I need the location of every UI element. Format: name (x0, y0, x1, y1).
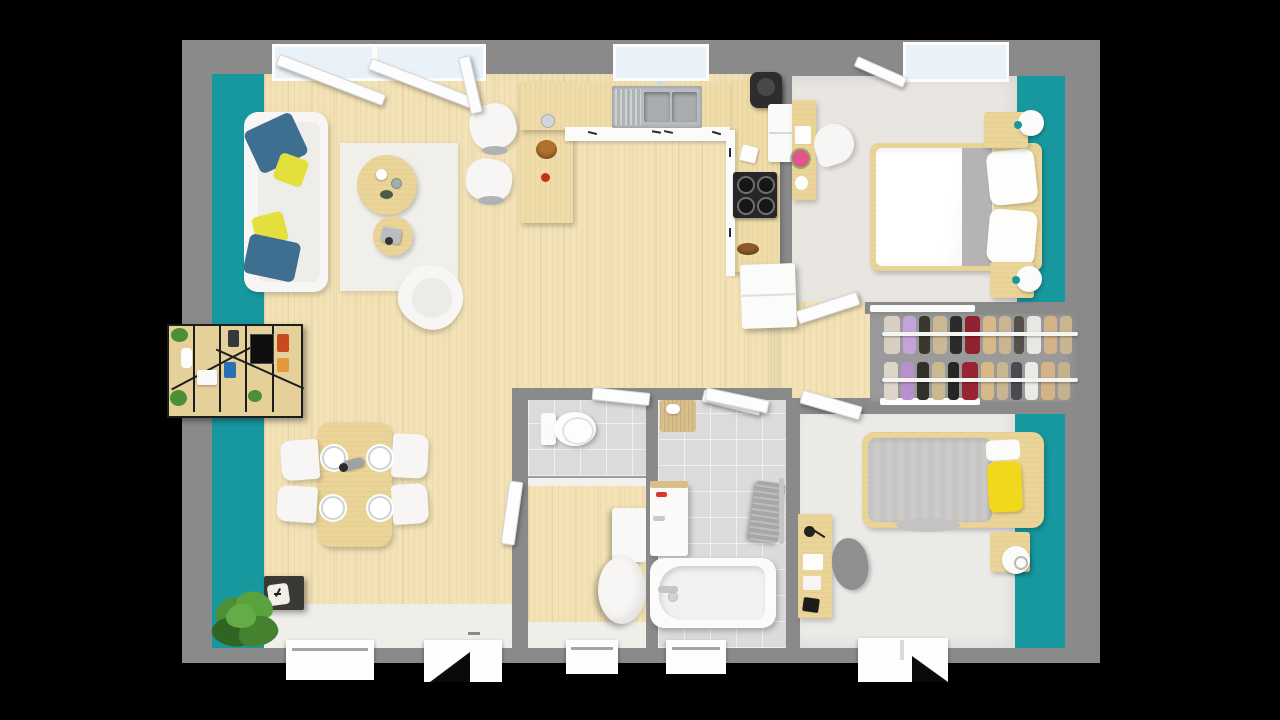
coffee-machine-top (757, 78, 775, 96)
shelf-plant-3 (248, 390, 262, 402)
kitchen-window (613, 44, 709, 81)
shelf-tv-screen (250, 334, 274, 364)
bathtub-drain (668, 592, 678, 602)
bedroom2-window-mullion (900, 640, 904, 660)
bedroom2-desk-black-object (802, 597, 820, 613)
cabinet-handle-5 (729, 148, 731, 157)
dining-window (286, 640, 374, 680)
counter-glass (541, 114, 555, 128)
kitchen-cabinet-front-top (565, 127, 730, 141)
coffee-table-large (357, 155, 417, 215)
washing-machine-handle (653, 516, 665, 521)
cup-white (376, 169, 387, 180)
pepper-mill-cap (339, 463, 348, 472)
hall-window-glass-line (571, 647, 613, 650)
shelf-books-orange (277, 358, 289, 372)
dining-chair-4 (391, 483, 430, 525)
plant-leaf-5 (226, 604, 256, 628)
glass-gray (391, 178, 402, 189)
stool-base-1 (482, 146, 508, 155)
stool-base-2 (478, 196, 504, 205)
wall-oven-seam (769, 132, 793, 134)
closet-rail-1 (882, 332, 1078, 336)
bedroom2-blanket-drape (896, 518, 960, 532)
dining-chair-1 (280, 439, 321, 482)
burner-3 (737, 197, 755, 215)
burner-4 (757, 197, 775, 215)
washer-box (612, 508, 646, 562)
plate-2 (368, 446, 392, 470)
bedroom2-desk-papers-2 (803, 576, 821, 590)
bedroom2-duvet (868, 438, 992, 522)
bowl-dark (380, 190, 393, 199)
towel-rail (779, 478, 784, 544)
entry-door-handle (468, 632, 480, 635)
burner-1 (737, 176, 755, 194)
bedroom2-desk-papers-1 (803, 554, 823, 570)
cooktop (733, 172, 777, 218)
burner-2 (757, 176, 775, 194)
shelf-books-blue (224, 362, 236, 378)
shelf-printer-white (197, 370, 217, 385)
sink-drainboard (615, 89, 641, 125)
plate-4 (368, 496, 392, 520)
hall-window (566, 640, 618, 674)
bedroom1-lamp-top (1018, 110, 1044, 136)
bathroom-window (666, 640, 726, 674)
bathroom-window-glass-line (672, 647, 720, 650)
floor-plan-scene (0, 0, 1280, 720)
bedroom1-lamp-bottom-accent (1012, 276, 1020, 284)
bedroom1-pillow-2 (986, 208, 1039, 266)
dining-table (317, 422, 392, 547)
shelf-books-dark (228, 330, 239, 347)
washing-machine-logo (656, 492, 667, 497)
clock-hand-hour (274, 593, 281, 595)
bedroom2-sheet-fold (985, 439, 1020, 461)
bedroom2-yellow-pillow (987, 461, 1024, 513)
closet-rail-2 (882, 378, 1078, 382)
sink-basin-2 (672, 92, 697, 122)
kettle-cap (385, 237, 393, 245)
rolled-towel (666, 404, 680, 414)
cake (536, 140, 557, 159)
bedroom1-lamp-top-accent (1014, 121, 1022, 129)
dining-chair-3 (391, 433, 429, 479)
dining-window-glass-line (292, 648, 368, 651)
bookshelf-divider-2 (219, 326, 221, 412)
dining-chair-2 (276, 485, 318, 524)
bookshelf-divider-1 (193, 326, 195, 412)
bedroom1-flower (792, 150, 809, 167)
red-jar (541, 173, 550, 182)
closet-track-top (870, 305, 975, 312)
bedroom1-window (903, 42, 1009, 82)
plate-3 (321, 496, 345, 520)
cabinet-handle-6 (729, 228, 731, 237)
bookshelf-divider-3 (245, 326, 247, 412)
bedroom1-pillow-1 (985, 148, 1038, 207)
toilet-seat-ring (562, 417, 594, 445)
washing-machine-top (650, 481, 688, 488)
sink-basin-1 (644, 92, 670, 122)
water-heater (598, 556, 646, 624)
shelf-plant-2 (170, 390, 187, 406)
bedroom2-lamp-ring (1014, 556, 1028, 570)
bedroom1-desk-vase (795, 176, 808, 190)
shelf-plant-1 (171, 328, 188, 342)
bedroom1-desk-papers (795, 126, 811, 144)
fruit-bowl (737, 243, 759, 255)
shelf-vase-white (181, 348, 192, 368)
shelf-books-red (277, 334, 289, 352)
